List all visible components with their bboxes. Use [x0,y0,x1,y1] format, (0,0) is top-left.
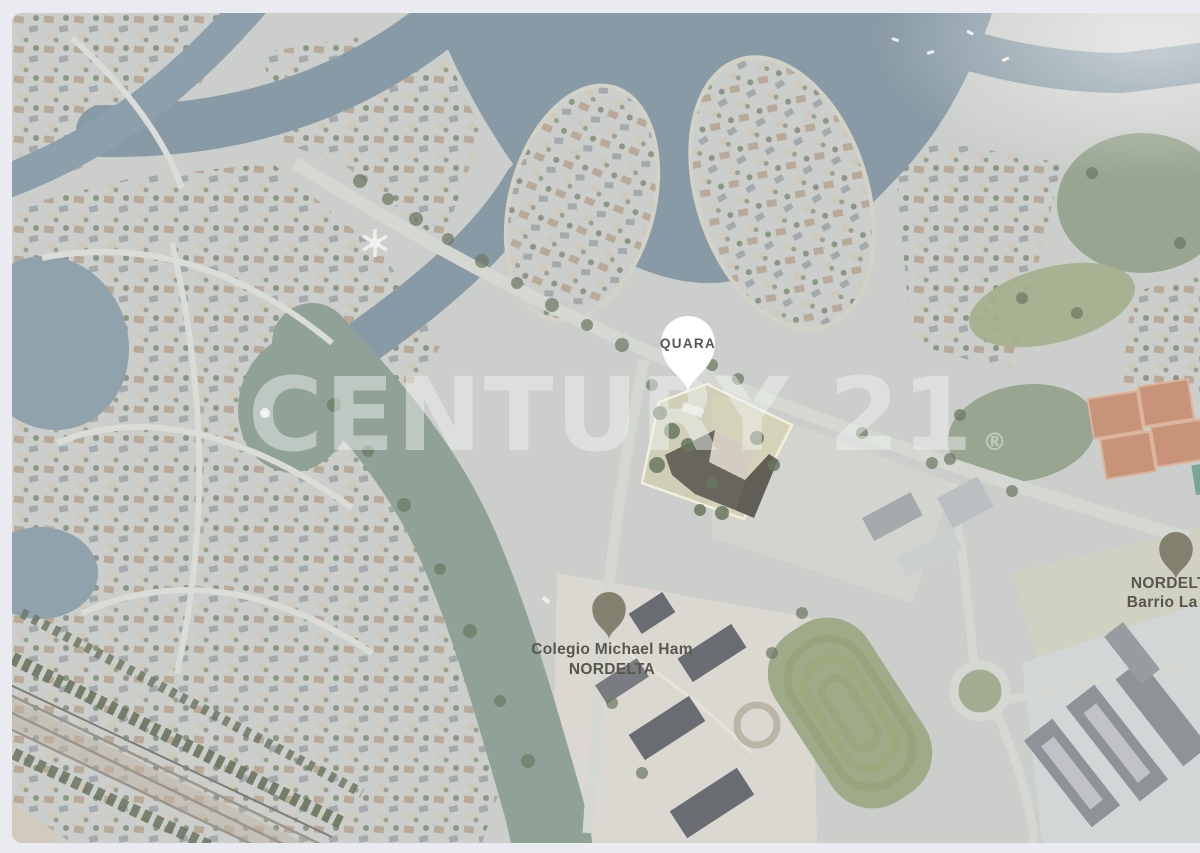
barrio-label-line1: NORDELTA [1131,575,1200,592]
colegio-label-line1: Colegio Michael Ham [531,641,693,658]
map-pins-layer: QUARA Colegio Michael Ham NORDELTA NORDE… [12,13,1200,843]
colegio-label-line2: NORDELTA [569,661,655,678]
satellite-map[interactable]: CENTURY 21® QUARA Colegio Michael Ham NO… [12,13,1200,843]
barrio-la-isla-label: NORDELTA Barrio La Isla [1127,575,1200,611]
colegio-pin-marker[interactable] [592,592,625,639]
barrio-label-line2: Barrio La Isla [1127,594,1200,611]
quara-pin-marker[interactable]: QUARA [660,316,716,391]
image-viewer-background: CENTURY 21® QUARA Colegio Michael Ham NO… [0,0,1200,853]
colegio-label: Colegio Michael Ham NORDELTA [531,641,693,678]
barrio-la-isla-pin-marker[interactable] [1159,532,1192,579]
quara-pin-label: QUARA [660,336,716,351]
